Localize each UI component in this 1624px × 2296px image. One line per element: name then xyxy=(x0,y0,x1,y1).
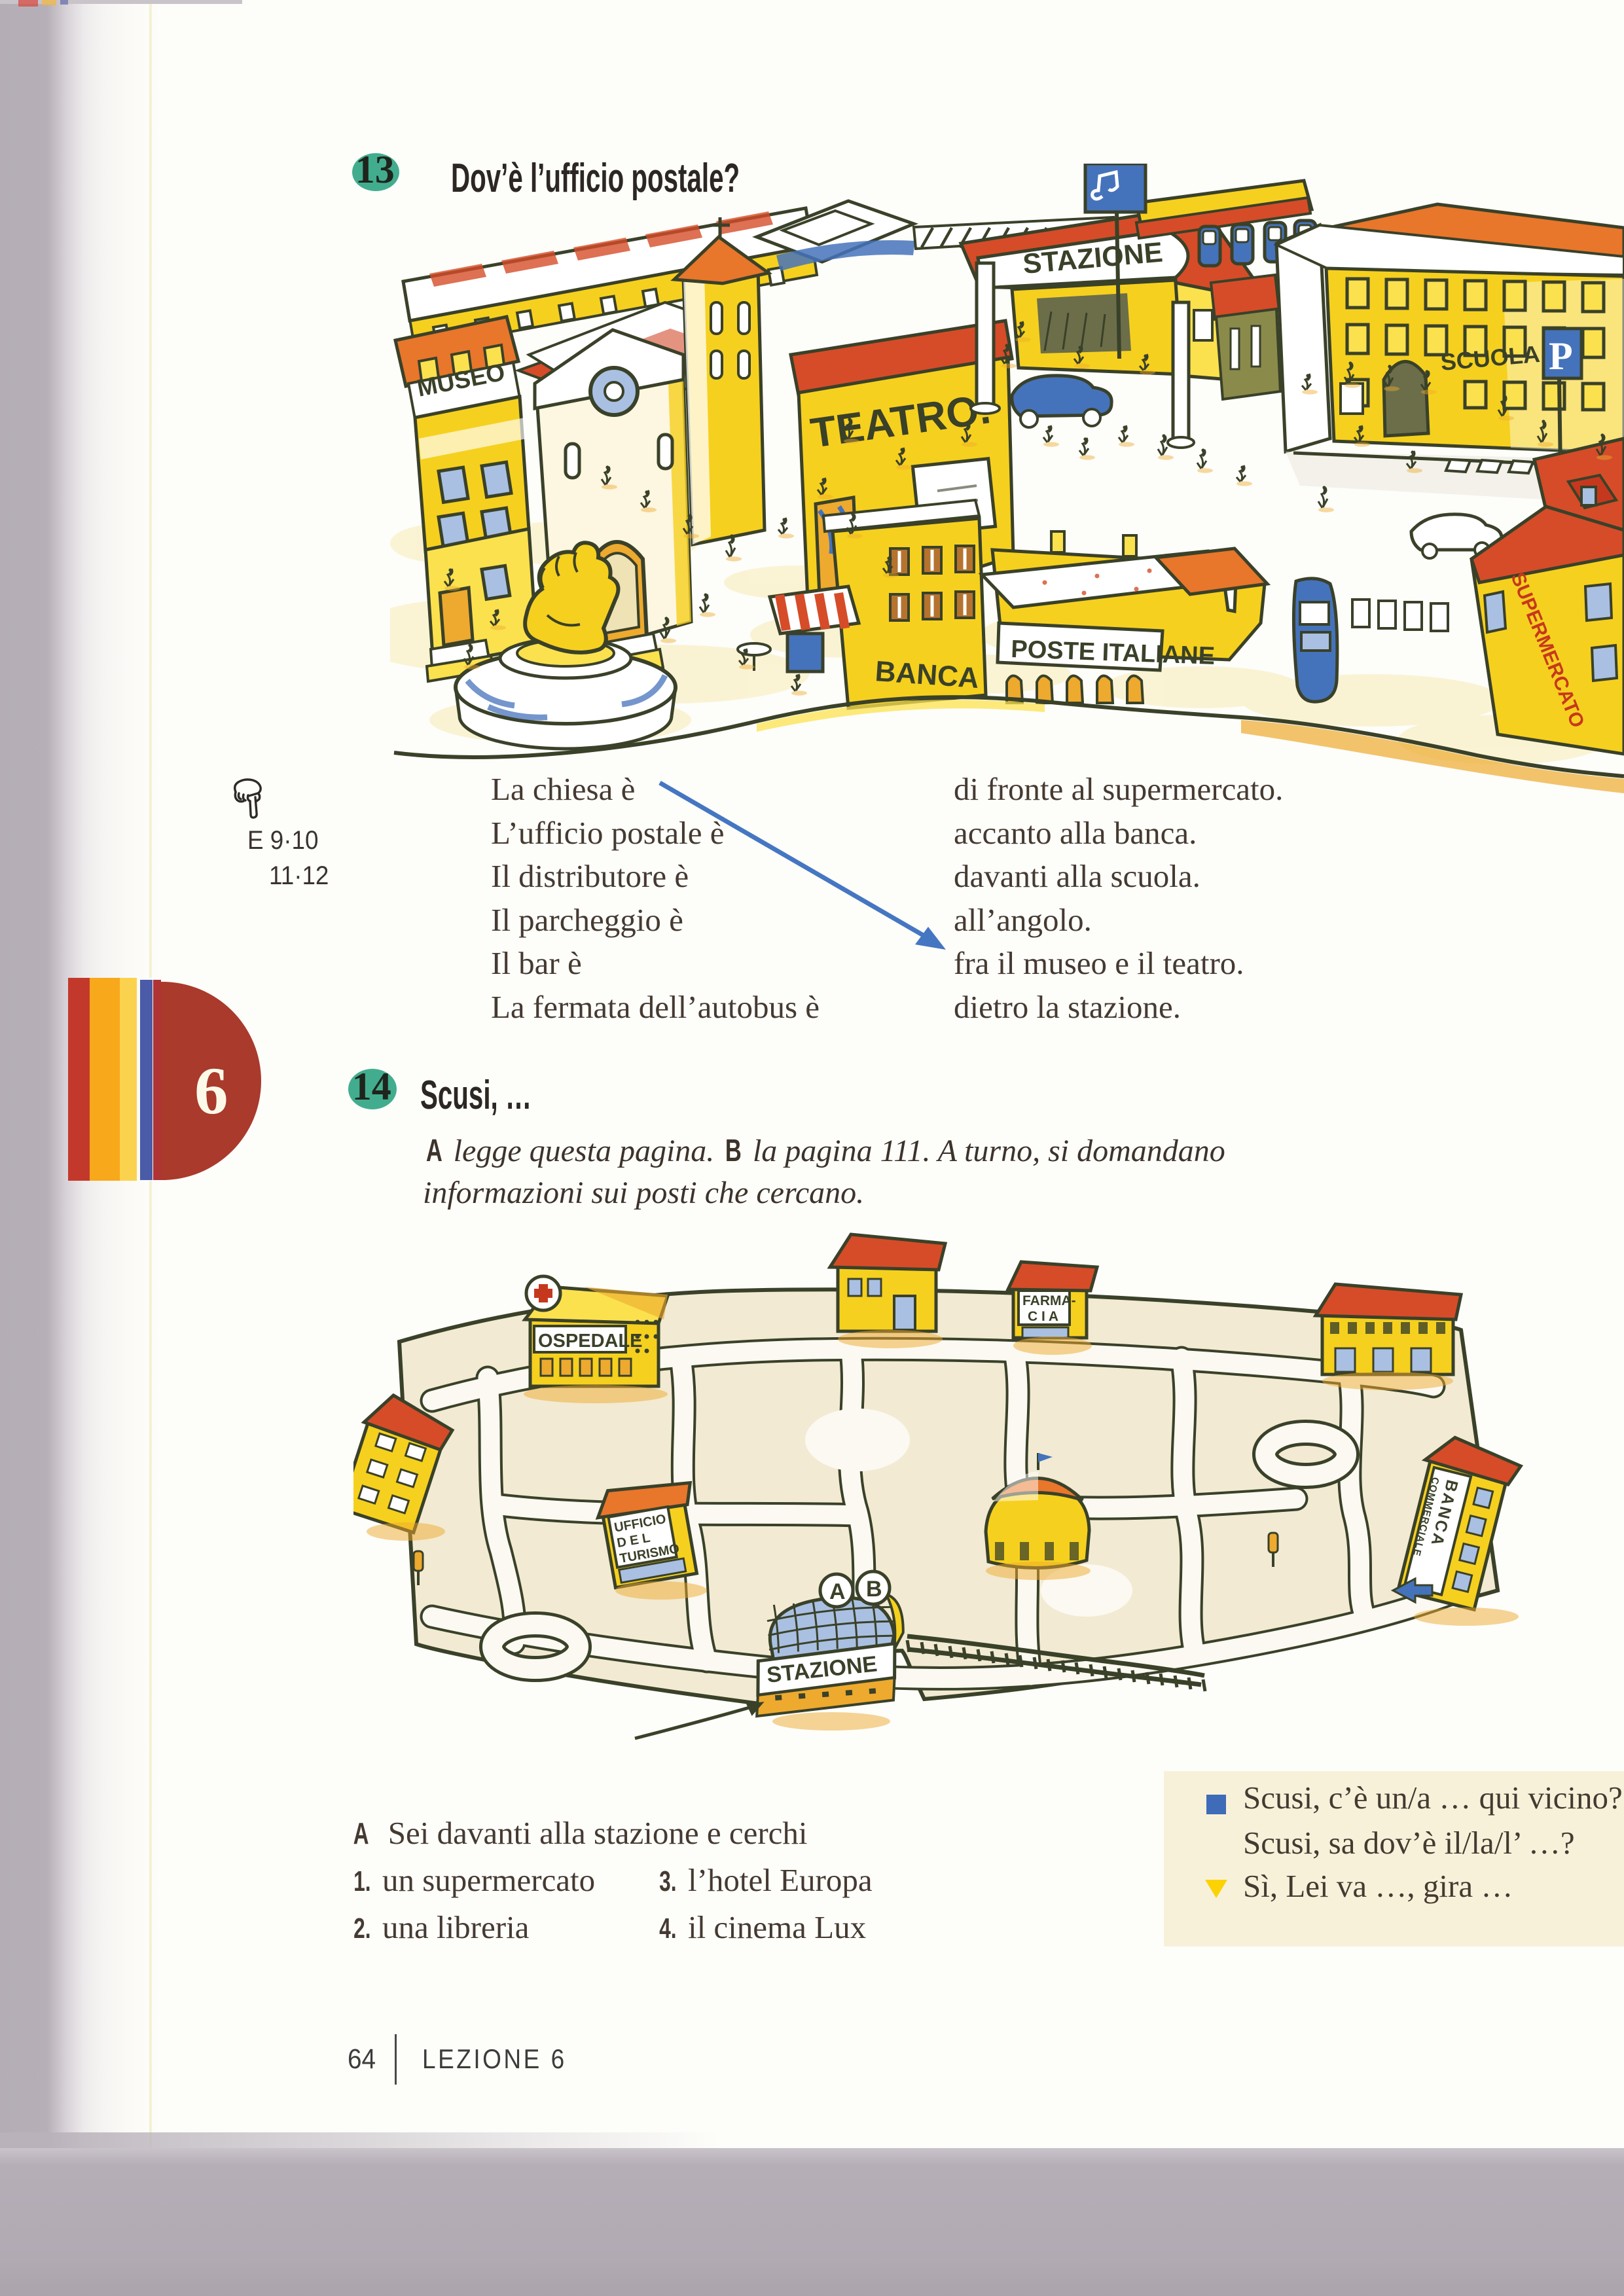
svg-text:B: B xyxy=(866,1577,882,1602)
svg-text:FARMA-: FARMA- xyxy=(1022,1293,1076,1308)
svg-text:A: A xyxy=(829,1579,846,1604)
svg-text:OSPEDALE: OSPEDALE xyxy=(538,1331,643,1352)
svg-text:C I A: C I A xyxy=(1028,1309,1058,1324)
svg-text:P: P xyxy=(1549,334,1573,378)
